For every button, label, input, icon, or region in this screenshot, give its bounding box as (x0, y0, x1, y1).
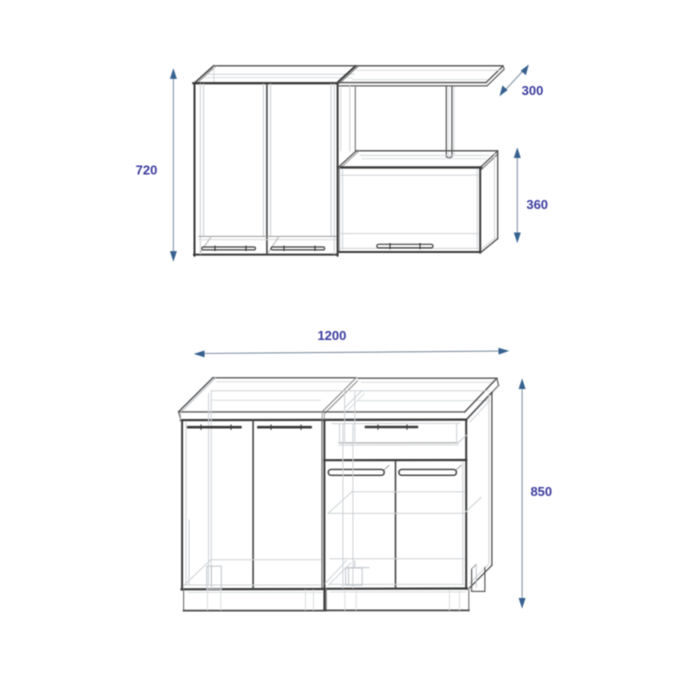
svg-text:850: 850 (530, 484, 552, 499)
svg-text:300: 300 (522, 83, 544, 98)
svg-text:720: 720 (136, 163, 158, 178)
svg-text:1200: 1200 (317, 328, 346, 343)
svg-text:360: 360 (526, 197, 548, 212)
